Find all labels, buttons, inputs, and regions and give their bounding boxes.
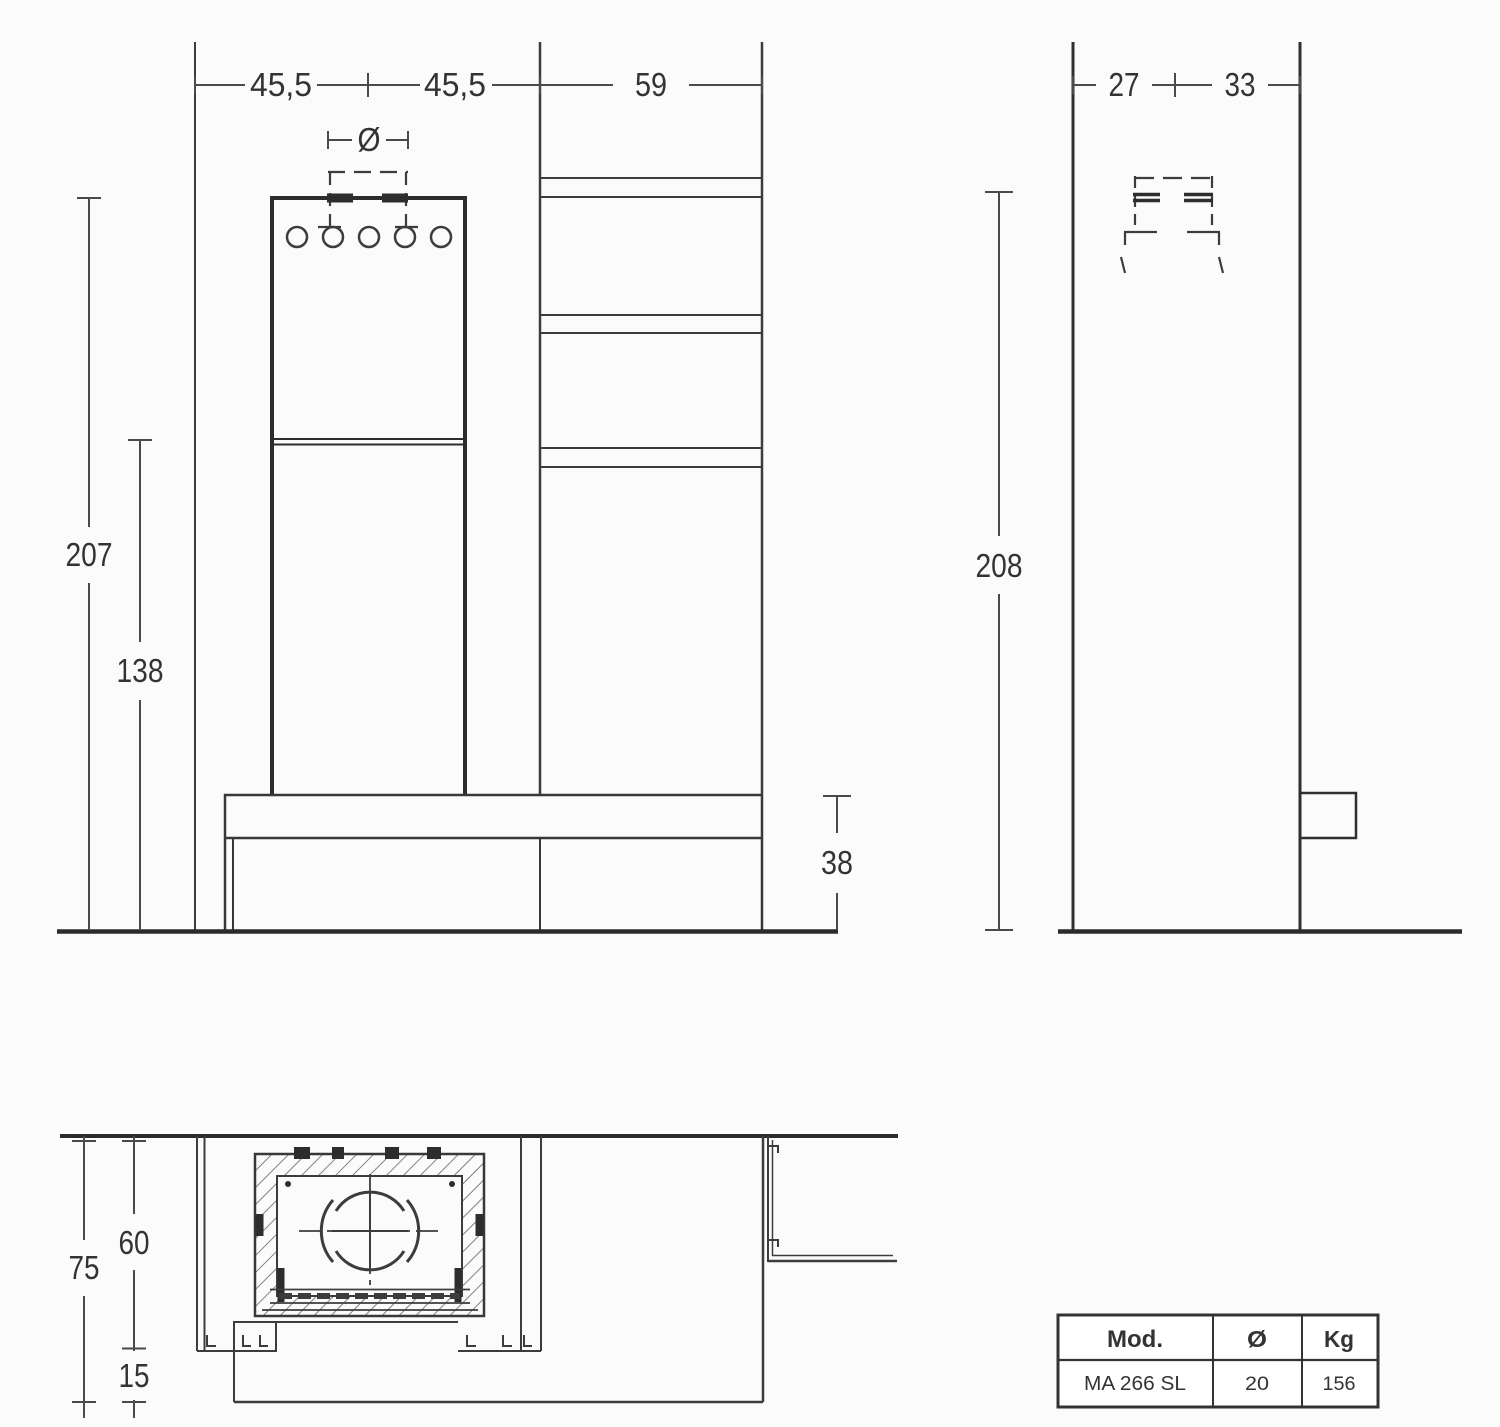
dim-column-width-label: 59: [635, 66, 667, 103]
anchor-hook: [467, 1335, 476, 1346]
firebox-clamp-mark: [256, 1214, 264, 1236]
spec-table: Mod. Ø Kg MA 266 SL 20 156: [1058, 1315, 1378, 1407]
spec-header-model: Mod.: [1107, 1326, 1163, 1353]
side-bench-box: [1300, 793, 1356, 838]
side-flue-dash: [1121, 257, 1125, 273]
firebox-clamp-mark: [385, 1147, 399, 1159]
recess-corner-block: [234, 1322, 276, 1351]
firebox-clamp-mark: [476, 1214, 484, 1236]
stove-body: [272, 198, 465, 795]
dim-width-left-label: 45,5: [250, 66, 312, 103]
technical-drawing-page: 45,5 45,5 59 Ø 207 138 38: [0, 0, 1500, 1427]
anchor-hook: [260, 1335, 268, 1346]
air-hole: [359, 227, 379, 247]
anchor-hook: [503, 1335, 512, 1346]
air-hole: [287, 227, 307, 247]
stove-body-outline: [272, 198, 465, 795]
firebox-corner-dot: [285, 1181, 291, 1187]
side-structure-lines: [1073, 42, 1356, 930]
side-view: 27 33 208: [976, 42, 1463, 932]
side-flue-dash: [1219, 257, 1223, 273]
dim-depth-recess-label: 60: [119, 1224, 150, 1261]
spec-value-model: MA 266 SL: [1084, 1372, 1186, 1395]
bench-and-plinth: [225, 795, 762, 930]
dim-depth-rear-label: 33: [1225, 66, 1256, 103]
spec-header-weight: Kg: [1324, 1326, 1354, 1352]
dim-bench-height-label: 38: [821, 844, 853, 881]
dim-firebox-height-label: 138: [117, 652, 164, 689]
dim-depth-front-label: 27: [1109, 66, 1140, 103]
firebox-clamp-mark: [294, 1147, 310, 1159]
dim-total-height-label: 207: [66, 536, 113, 573]
air-holes: [287, 227, 451, 247]
air-hole: [431, 227, 451, 247]
anchor-hook: [243, 1335, 251, 1346]
side-flue-dashed: [1121, 176, 1223, 273]
dim-side-height-label: 208: [976, 547, 1023, 584]
firebox-clamp-mark: [332, 1147, 344, 1159]
spec-value-weight: 156: [1323, 1374, 1356, 1395]
dim-front-ledge-label: 15: [119, 1357, 150, 1394]
air-hole: [323, 227, 343, 247]
spec-value-diameter: 20: [1245, 1374, 1269, 1395]
firebox-clamp-mark: [427, 1147, 441, 1159]
flue-collar-mark: [382, 194, 408, 203]
bench-slab: [225, 795, 762, 930]
dim-width-right-label: 45,5: [424, 66, 486, 103]
spec-header-diameter: Ø: [1247, 1326, 1267, 1352]
air-hole: [395, 227, 415, 247]
dim-depth-total-label: 75: [69, 1249, 100, 1286]
front-structure-lines: [195, 42, 762, 930]
front-view: 45,5 45,5 59 Ø 207 138 38: [57, 42, 853, 932]
flue-diameter-label: Ø: [358, 121, 381, 158]
fireplace-technical-drawing: 45,5 45,5 59 Ø 207 138 38: [0, 0, 1500, 1427]
firebox-corner-dot: [449, 1181, 455, 1187]
anchor-hook: [524, 1335, 532, 1346]
plan-view: 75 60 15: [60, 1136, 898, 1418]
flue-collar-mark: [327, 194, 353, 203]
anchor-hook: [207, 1335, 216, 1346]
